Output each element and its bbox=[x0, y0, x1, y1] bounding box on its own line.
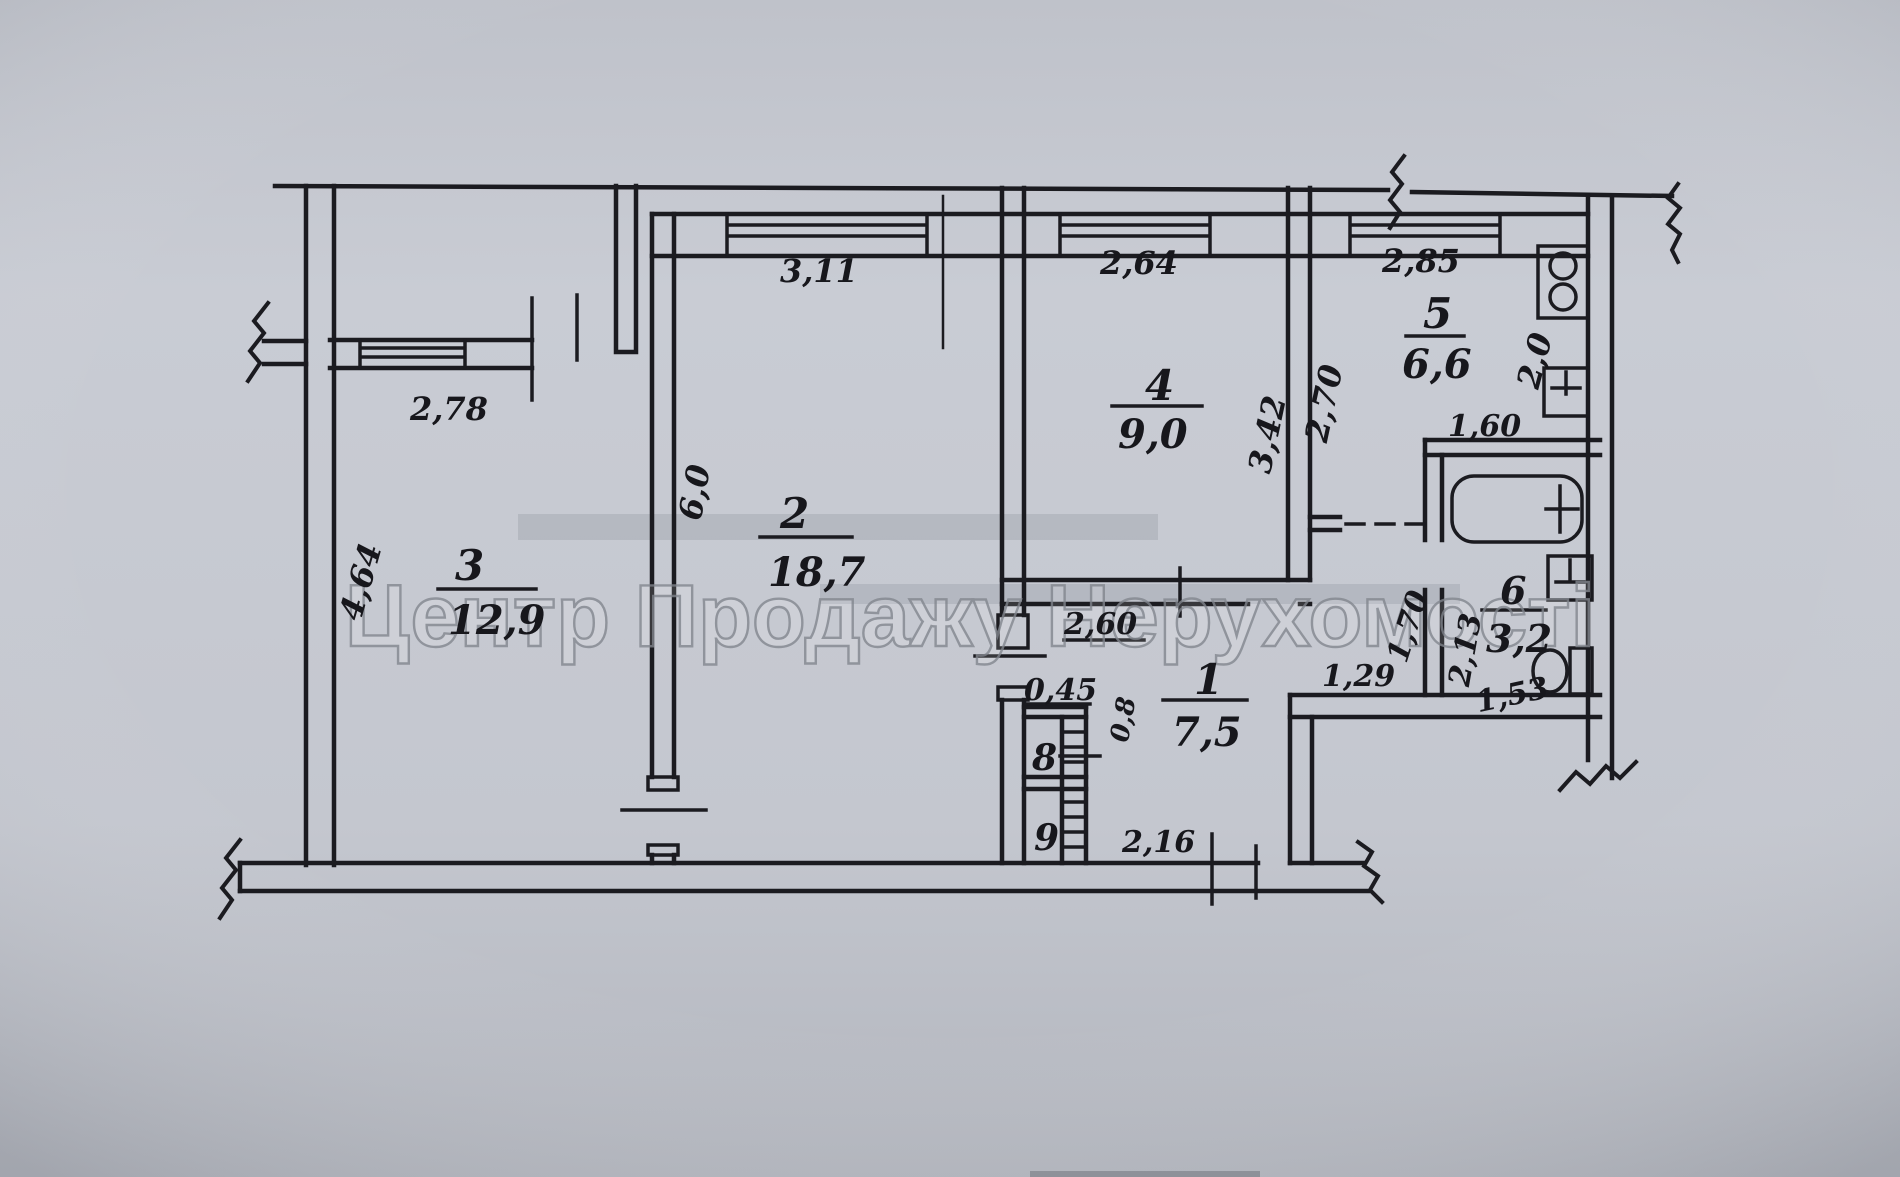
dim-kitchen-width: 2,85 bbox=[1381, 242, 1460, 280]
room-6-number: 6 bbox=[1500, 568, 1526, 613]
dim-room4-width: 2,64 bbox=[1099, 244, 1178, 282]
room-3-number: 3 bbox=[455, 541, 484, 590]
floor-plan-photo: Центр Продажу Нерухомості 2,78 3,11 2,64… bbox=[0, 0, 1900, 1177]
room-1-area: 7,5 bbox=[1172, 709, 1242, 756]
floor-plan-svg: Центр Продажу Нерухомості 2,78 3,11 2,64… bbox=[0, 0, 1900, 1177]
room-6-area: 3,2 bbox=[1486, 616, 1552, 661]
room-4-number: 4 bbox=[1145, 361, 1174, 410]
dim-room2-width: 3,11 bbox=[780, 252, 858, 290]
room-4-area: 9,0 bbox=[1118, 411, 1188, 458]
room-3-area: 12,9 bbox=[448, 597, 545, 644]
dim-hall-top-width: 2,60 bbox=[1063, 607, 1137, 642]
room-2-number: 2 bbox=[779, 489, 809, 538]
closet-9-number: 9 bbox=[1034, 817, 1059, 859]
dim-loggia-width: 2,78 bbox=[409, 390, 488, 428]
room-5-area: 6,6 bbox=[1402, 341, 1472, 388]
room-1-number: 1 bbox=[1194, 655, 1223, 704]
dim-hall-bottom-width: 2,16 bbox=[1121, 825, 1195, 860]
room-2-area: 18,7 bbox=[768, 549, 866, 596]
dim-closet-depth: 0,45 bbox=[1024, 673, 1097, 708]
dim-kitchen-nook-width: 1,60 bbox=[1448, 409, 1521, 444]
room-5-number: 5 bbox=[1423, 289, 1452, 338]
dim-corridor-width: 1,29 bbox=[1322, 659, 1395, 694]
closet-8-number: 8 bbox=[1031, 737, 1057, 779]
photo-edge-artifact bbox=[1030, 1171, 1260, 1177]
